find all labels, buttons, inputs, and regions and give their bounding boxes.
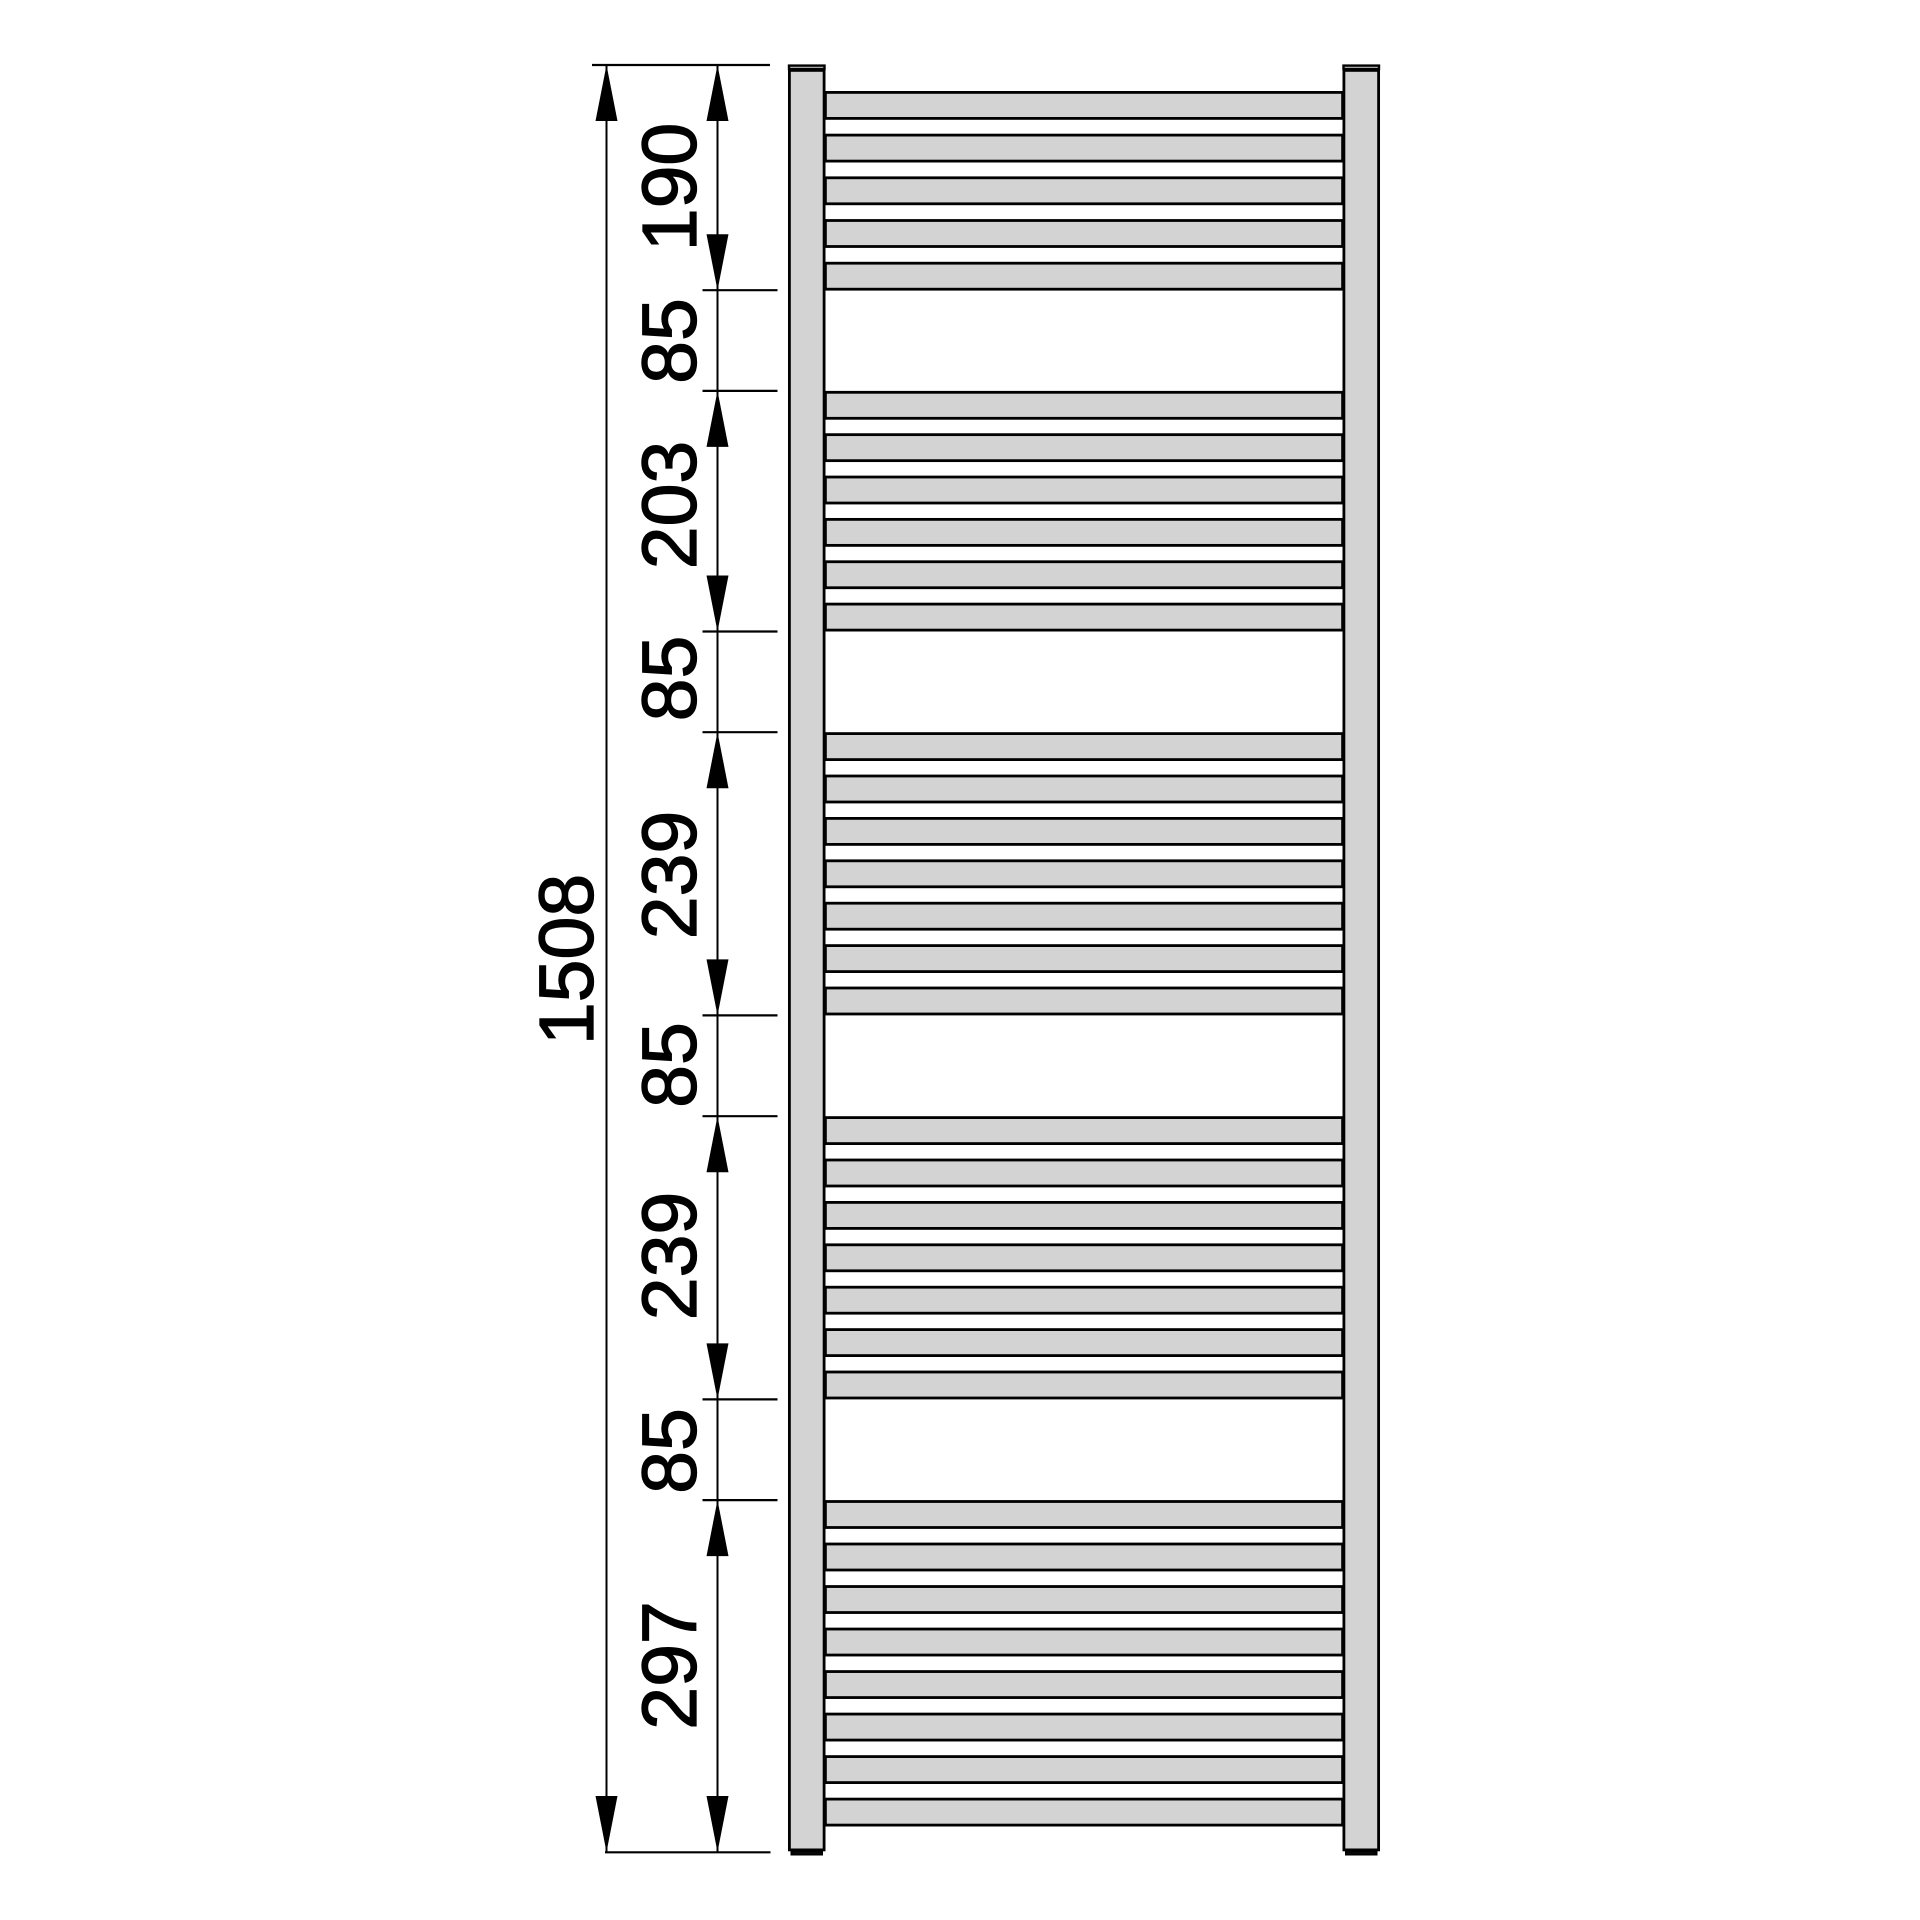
svg-text:85: 85 — [627, 298, 713, 384]
svg-text:85: 85 — [627, 1408, 713, 1494]
svg-text:190: 190 — [627, 123, 713, 251]
svg-text:203: 203 — [627, 441, 713, 569]
svg-text:1508: 1508 — [524, 874, 610, 1045]
svg-text:85: 85 — [627, 636, 713, 722]
svg-text:297: 297 — [627, 1601, 713, 1729]
svg-text:239: 239 — [627, 811, 713, 939]
svg-text:239: 239 — [627, 1192, 713, 1320]
svg-text:85: 85 — [627, 1022, 713, 1108]
